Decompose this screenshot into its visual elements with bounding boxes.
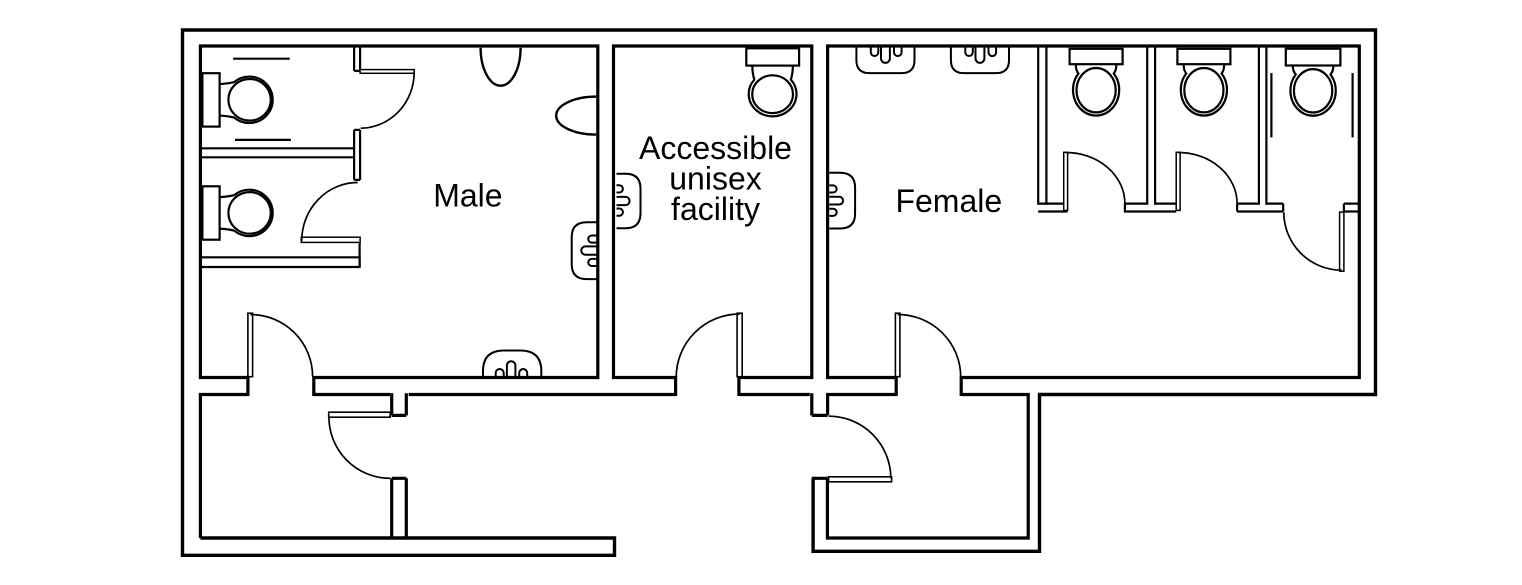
svg-text:Female: Female <box>895 183 1002 219</box>
svg-text:facility: facility <box>671 191 760 227</box>
svg-text:Male: Male <box>433 178 502 214</box>
